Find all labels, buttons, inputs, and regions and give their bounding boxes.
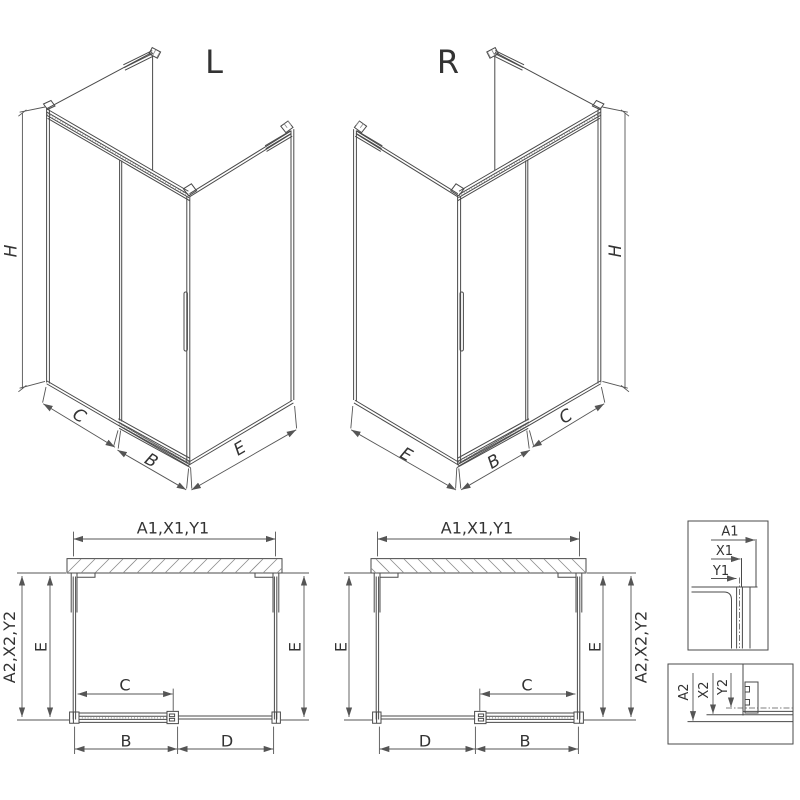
iso-view-left-labels: L H C B E — [2, 43, 250, 473]
detail-a1-x-label: X1 — [716, 544, 733, 559]
iso-enclosure-art — [18, 48, 296, 490]
plan-dimensions — [17, 532, 309, 754]
iso-left-c-label: C — [69, 404, 90, 427]
iso-right-b-label: B — [484, 450, 504, 473]
plan-left-depth-label: A2,X2,Y2 — [0, 611, 19, 683]
plan-right-b-label: B — [520, 732, 531, 751]
detail-a2-a-label: A2 — [677, 683, 692, 700]
plan-glass-left — [71, 573, 95, 719]
iso-right-height-label: H — [606, 244, 626, 257]
height-dimension — [18, 107, 45, 392]
technical-drawing-page: L H C B E R H E B C — [0, 0, 800, 800]
plan-left-d-label: D — [221, 732, 233, 751]
plan-left-c-label: C — [119, 676, 130, 695]
plan-left-e-left-label: E — [32, 642, 51, 652]
plan-right-width-label: A1,X1,Y1 — [441, 519, 513, 538]
plan-right-depth-label: A2,X2,Y2 — [632, 611, 651, 683]
iso-left-b-label: B — [141, 449, 161, 472]
plan-left-width-label: A1,X1,Y1 — [137, 519, 209, 538]
iso-right-title: R — [437, 43, 459, 81]
plan-right-e-right-label: E — [586, 642, 605, 652]
iso-left-e-label: E — [230, 438, 250, 461]
iso-view-right-labels: R H E B C — [396, 43, 626, 474]
wall-bracket-return — [266, 121, 294, 151]
plan-right-e-left-label: E — [332, 642, 351, 652]
plan-left-b-label: B — [121, 732, 132, 751]
detail-a2-y-label: Y2 — [716, 679, 731, 696]
detail-a1-y-label: Y1 — [712, 564, 729, 579]
iso-left-title: L — [205, 43, 223, 81]
iso-right-c-label: C — [556, 405, 576, 428]
iso-right-e-label: E — [396, 444, 415, 467]
bottom-dimensions — [43, 387, 297, 490]
detail-a2-frame — [668, 664, 793, 744]
plan-view-art — [17, 532, 309, 754]
wall-profile-left — [47, 108, 50, 383]
plan-right-d-label: D — [419, 732, 431, 751]
detail-box-a2: A2 X2 Y2 — [668, 664, 793, 744]
detail-a1-a-label: A1 — [721, 525, 738, 540]
detail-a2-x-label: X2 — [697, 681, 712, 698]
wall-section — [67, 559, 282, 573]
return-glass-wall — [189, 130, 294, 465]
sliding-door — [120, 160, 188, 421]
iso-left-height-label: H — [2, 244, 22, 257]
front-glass-bottom-edge — [47, 381, 189, 466]
plan-glass-right — [255, 573, 279, 719]
top-rail — [47, 109, 189, 200]
plan-right-c-label: C — [521, 676, 532, 695]
plan-front-assembly — [70, 711, 281, 723]
technical-drawing-canvas: L H C B E R H E B C — [0, 0, 800, 800]
iso-view-right-art — [351, 48, 629, 490]
detail-box-a1: A1 X1 Y1 — [688, 521, 768, 650]
corner-post — [183, 184, 196, 464]
plan-left-e-right-label: E — [286, 642, 305, 652]
